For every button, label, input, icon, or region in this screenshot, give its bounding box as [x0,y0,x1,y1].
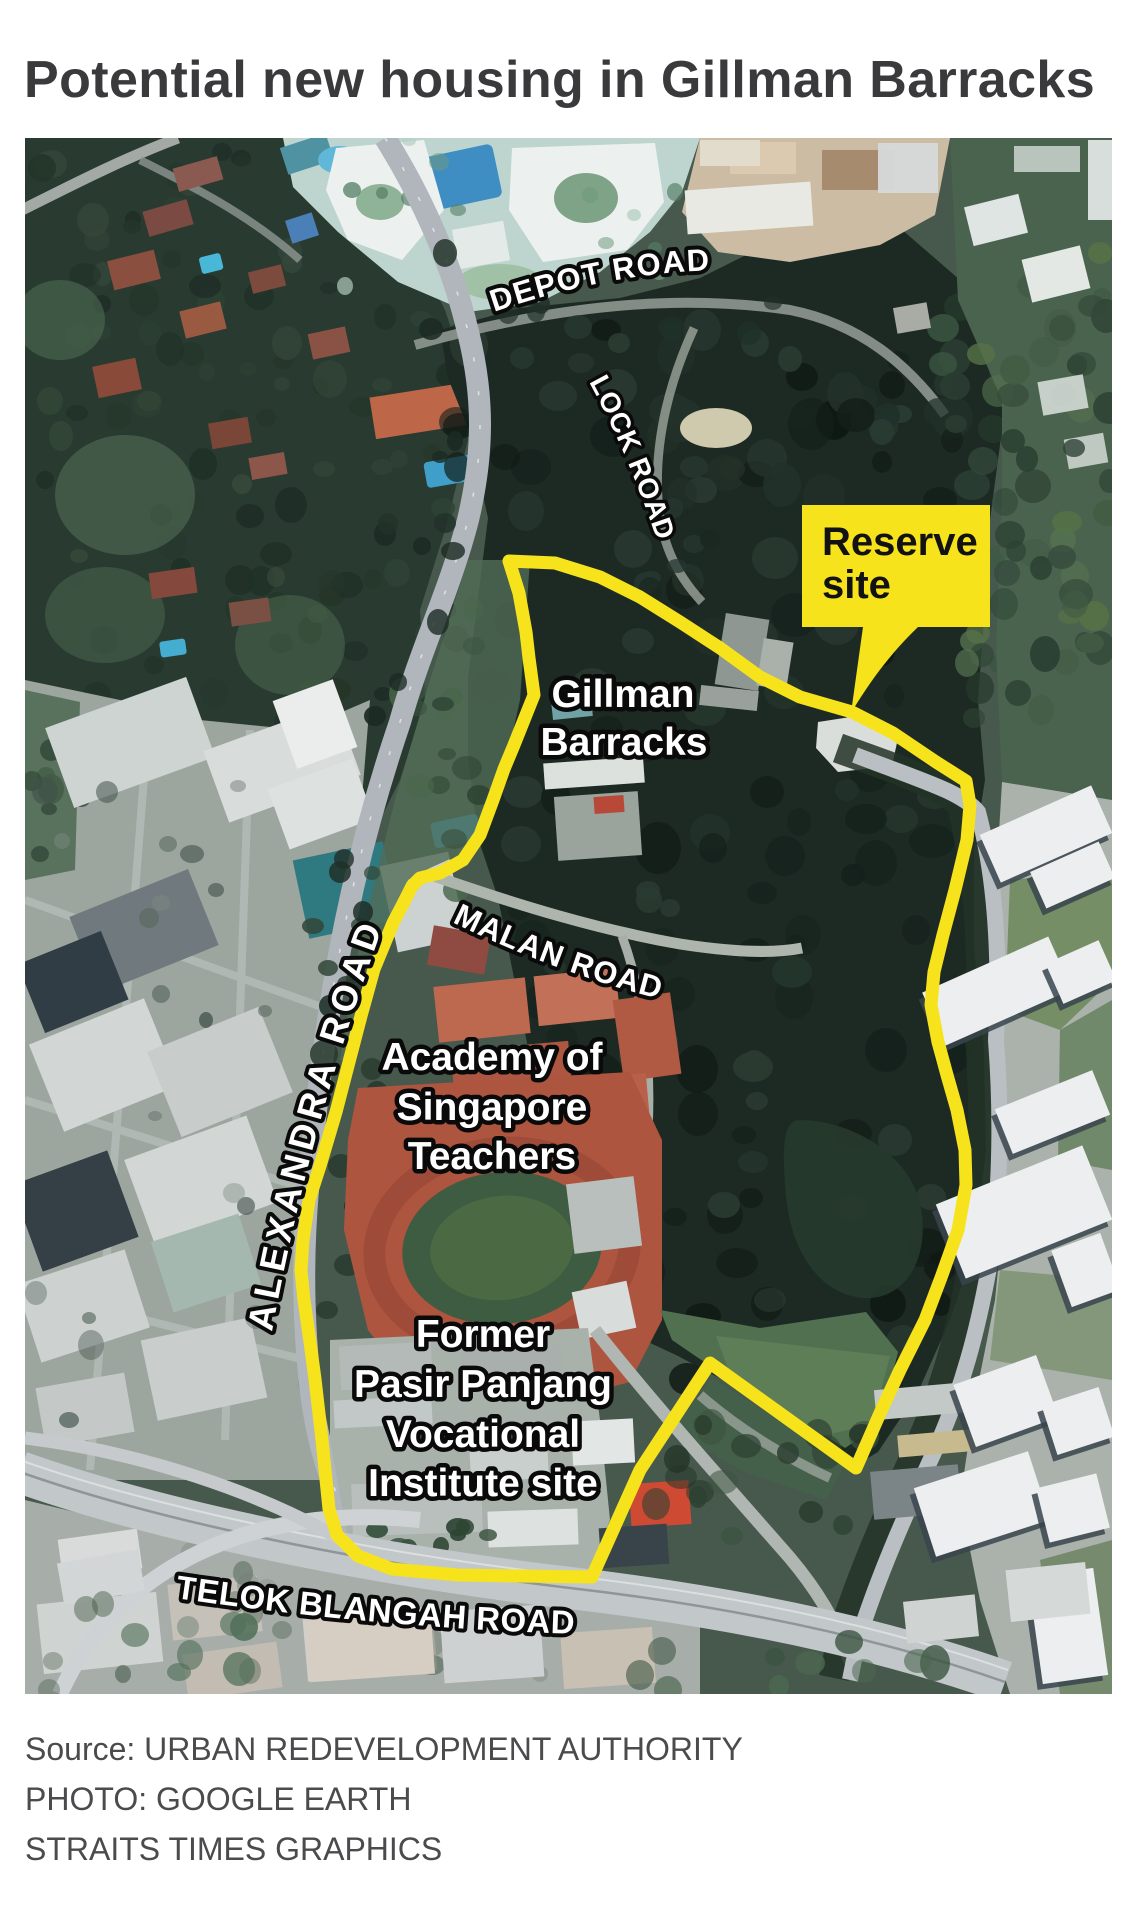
svg-text:Pasir Panjang: Pasir Panjang [354,1363,612,1406]
svg-text:Vocational: Vocational [386,1413,580,1456]
svg-text:Gillman: Gillman [551,673,694,716]
svg-text:site: site [822,563,891,607]
svg-text:Academy of: Academy of [381,1036,603,1079]
svg-text:Singapore: Singapore [397,1086,588,1129]
svg-text:Barracks: Barracks [541,721,708,764]
svg-text:Institute site: Institute site [368,1462,598,1505]
svg-text:Teachers: Teachers [408,1135,576,1178]
svg-text:Former: Former [416,1313,550,1356]
svg-text:Reserve: Reserve [822,520,978,564]
